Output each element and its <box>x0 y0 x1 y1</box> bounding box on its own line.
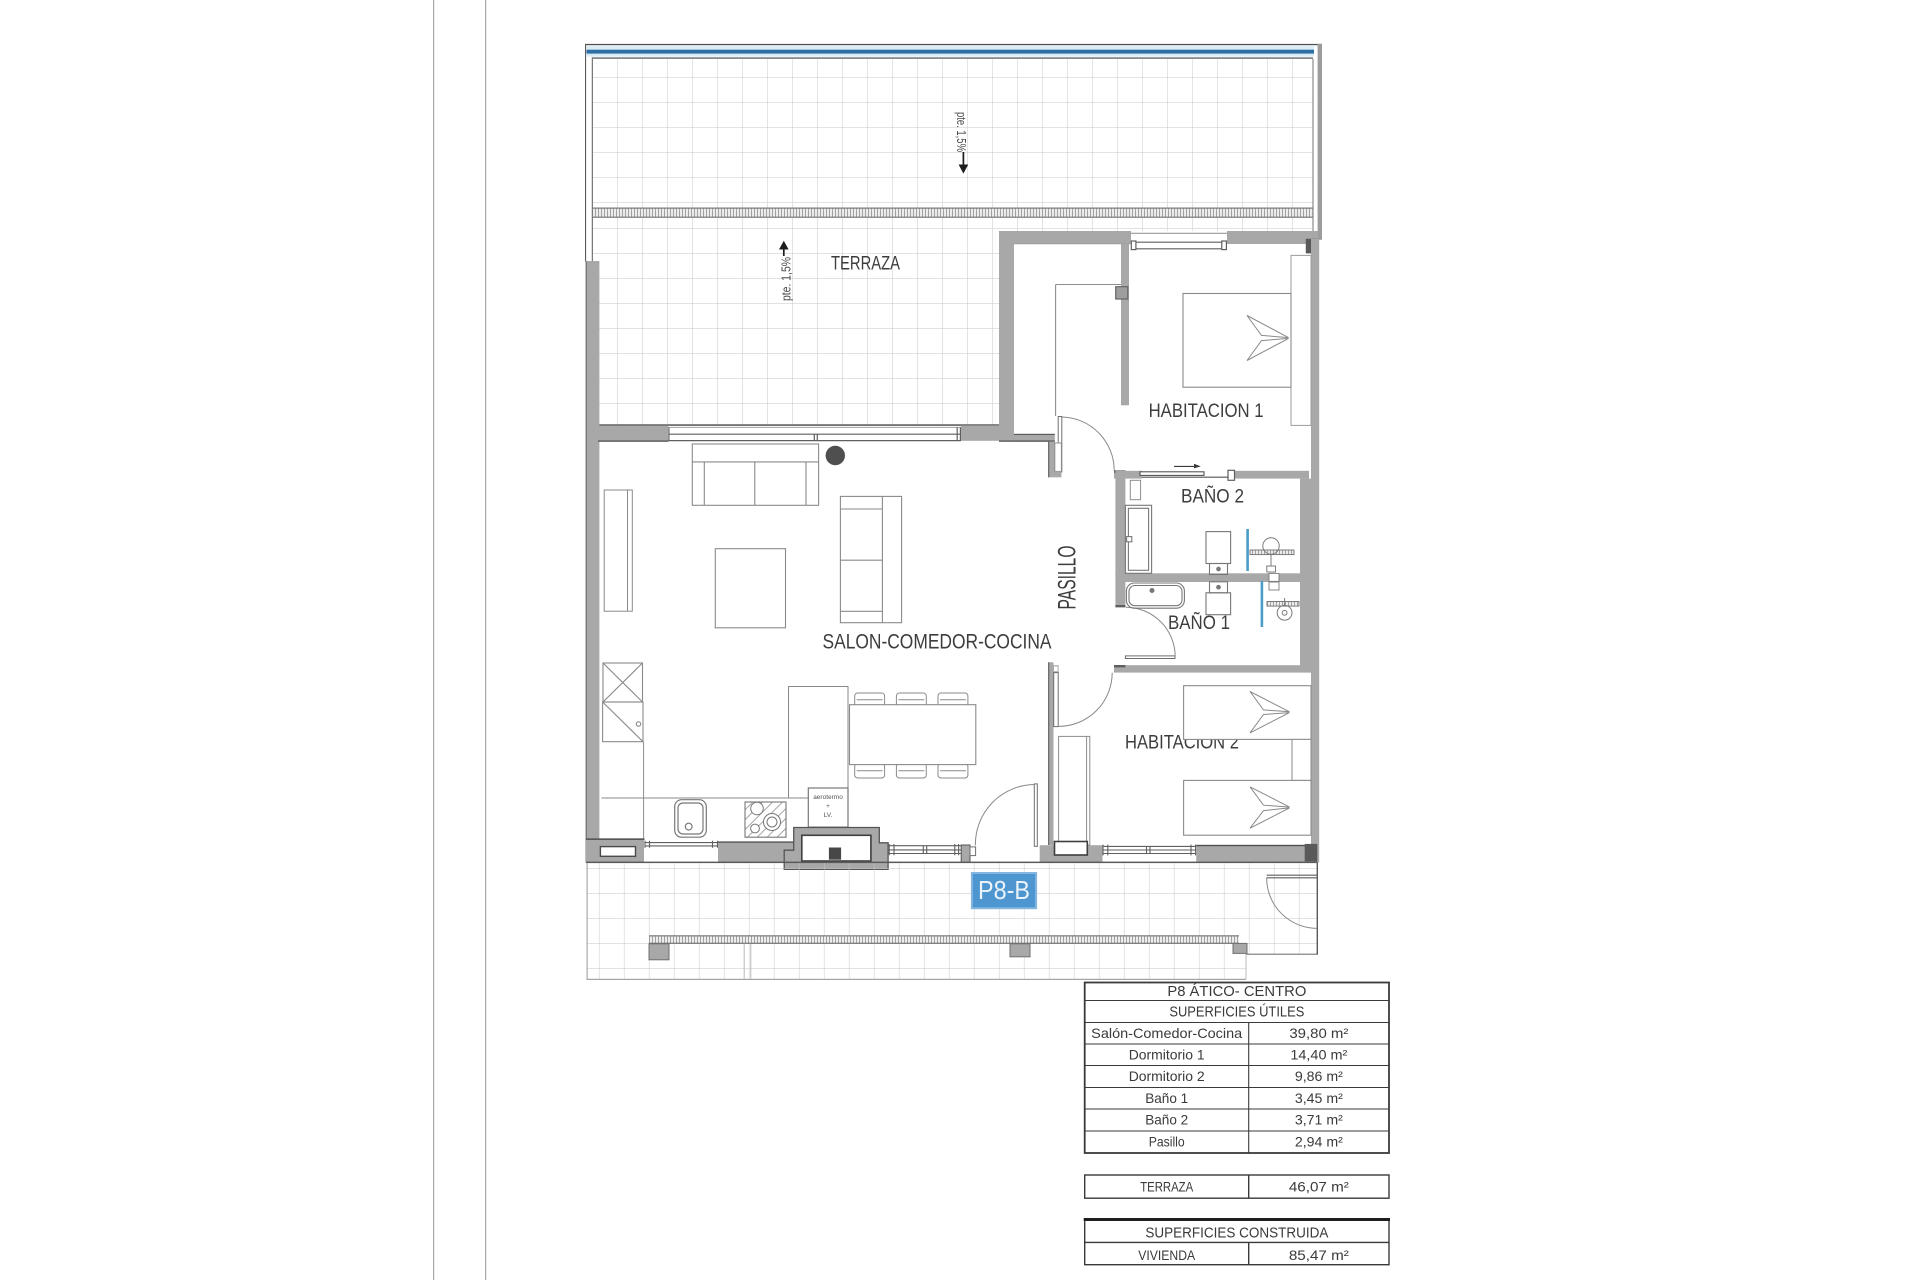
svg-text:pte. 1,5%: pte. 1,5% <box>954 112 968 152</box>
svg-text:3,71 m²: 3,71 m² <box>1295 1112 1343 1128</box>
svg-text:Salón-Comedor-Cocina: Salón-Comedor-Cocina <box>1091 1025 1242 1041</box>
svg-text:PASILLO: PASILLO <box>1054 546 1082 610</box>
svg-text:pte. 1,5%: pte. 1,5% <box>780 257 794 301</box>
svg-text:3,45 m²: 3,45 m² <box>1295 1090 1343 1106</box>
svg-text:2,94 m²: 2,94 m² <box>1295 1134 1343 1150</box>
svg-text:Baño 2: Baño 2 <box>1145 1112 1188 1128</box>
svg-text:Dormitorio 2: Dormitorio 2 <box>1129 1068 1205 1084</box>
svg-text:aerotermo: aerotermo <box>813 794 843 801</box>
svg-text:46,07 m²: 46,07 m² <box>1289 1178 1349 1194</box>
svg-text:85,47 m²: 85,47 m² <box>1289 1247 1349 1263</box>
svg-text:SALON-COMEDOR-COCINA: SALON-COMEDOR-COCINA <box>823 629 1053 653</box>
svg-text:SUPERFICIES CONSTRUIDA: SUPERFICIES CONSTRUIDA <box>1145 1226 1328 1242</box>
svg-text:LV.: LV. <box>824 812 833 819</box>
svg-text:BAÑO 1: BAÑO 1 <box>1168 612 1230 634</box>
svg-text:+: + <box>826 803 830 810</box>
svg-text:39,80 m²: 39,80 m² <box>1289 1025 1348 1041</box>
svg-text:Dormitorio 1: Dormitorio 1 <box>1129 1047 1205 1063</box>
svg-text:9,86 m²: 9,86 m² <box>1295 1068 1343 1084</box>
svg-text:P8 ÁTICO- CENTRO: P8 ÁTICO- CENTRO <box>1167 983 1306 1000</box>
svg-text:TERRAZA: TERRAZA <box>831 253 900 275</box>
svg-text:TERRAZA: TERRAZA <box>1140 1178 1194 1194</box>
svg-text:P8-B: P8-B <box>978 875 1030 905</box>
svg-text:VIVIENDA: VIVIENDA <box>1138 1247 1196 1263</box>
svg-text:HABITACION 1: HABITACION 1 <box>1149 401 1264 422</box>
svg-text:Baño 1: Baño 1 <box>1145 1090 1188 1106</box>
svg-text:SUPERFICIES ÚTILES: SUPERFICIES ÚTILES <box>1169 1004 1304 1021</box>
svg-text:BAÑO 2: BAÑO 2 <box>1181 485 1244 507</box>
svg-text:14,40 m²: 14,40 m² <box>1290 1047 1347 1063</box>
svg-text:Pasillo: Pasillo <box>1149 1134 1185 1150</box>
